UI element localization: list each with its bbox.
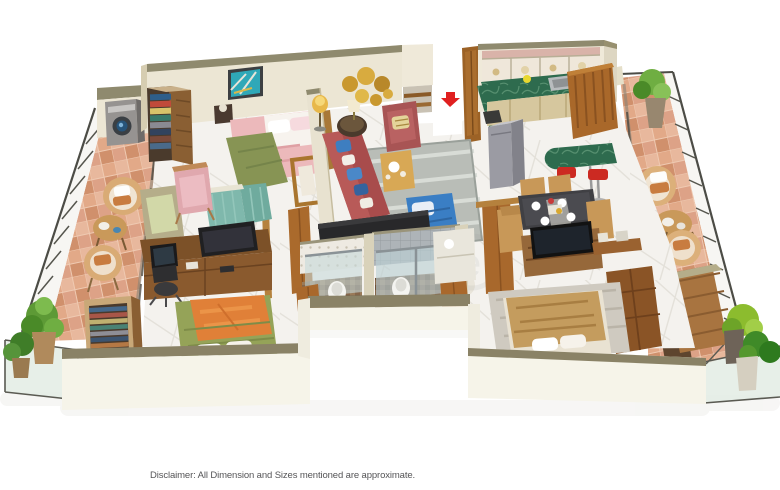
svg-text:Disclaimer: All Dimension and: Disclaimer: All Dimension and Sizes ment… [150,470,415,481]
